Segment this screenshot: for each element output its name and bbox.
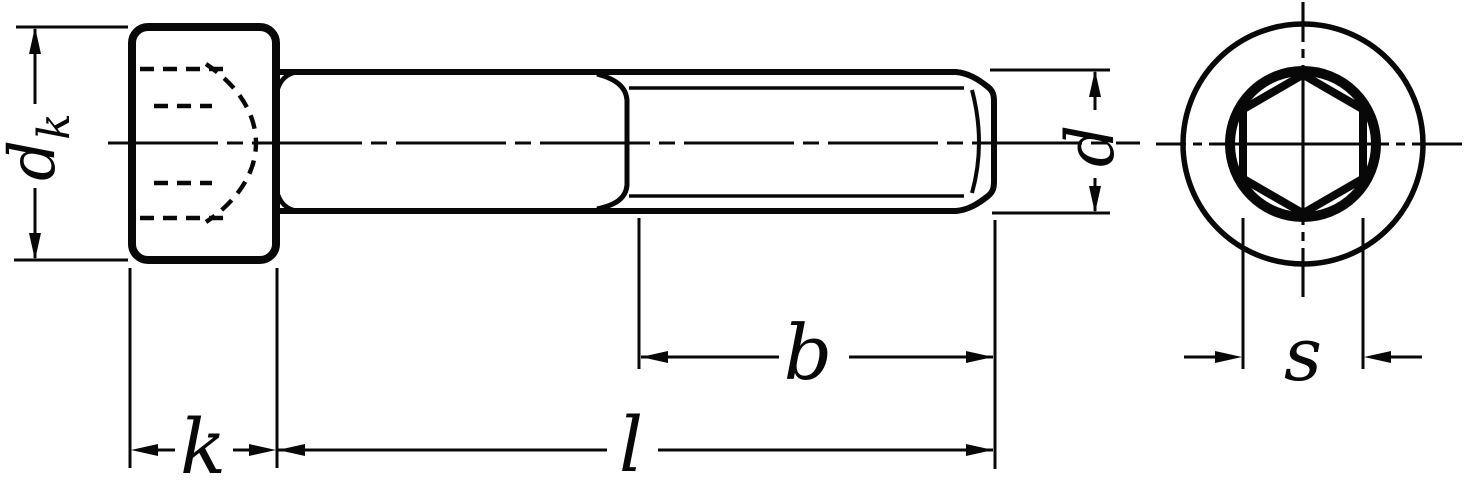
- s-label: s: [1284, 312, 1322, 398]
- socket-head-cap-screw-drawing: dk k l b d: [0, 0, 1470, 480]
- technical-drawing-page: dk k l b d: [0, 0, 1470, 480]
- dimension-s: s: [1184, 218, 1422, 398]
- arrowhead-left: [278, 444, 305, 456]
- arrowhead-right: [249, 444, 276, 456]
- arrowhead-right: [1215, 351, 1242, 363]
- l-label: l: [619, 400, 643, 480]
- arrowhead-right: [966, 351, 993, 363]
- side-view: [108, 27, 1140, 260]
- arrowhead-left: [131, 444, 158, 456]
- arrowhead-down: [29, 233, 41, 260]
- k-label: k: [180, 402, 226, 480]
- arrowhead-right: [966, 444, 993, 456]
- arrowhead-up: [29, 27, 41, 54]
- dk-label: dk: [0, 113, 80, 181]
- dimension-k: k: [130, 268, 277, 480]
- arrowhead-down: [1089, 186, 1101, 213]
- d-label: d: [1052, 125, 1129, 167]
- dimension-b: b: [639, 218, 993, 397]
- dimension-l: l: [277, 220, 995, 480]
- b-label: b: [784, 308, 833, 397]
- arrowhead-left: [641, 351, 668, 363]
- end-view: [1156, 2, 1468, 297]
- arrowhead-left: [1364, 351, 1391, 363]
- arrowhead-up: [1089, 70, 1101, 97]
